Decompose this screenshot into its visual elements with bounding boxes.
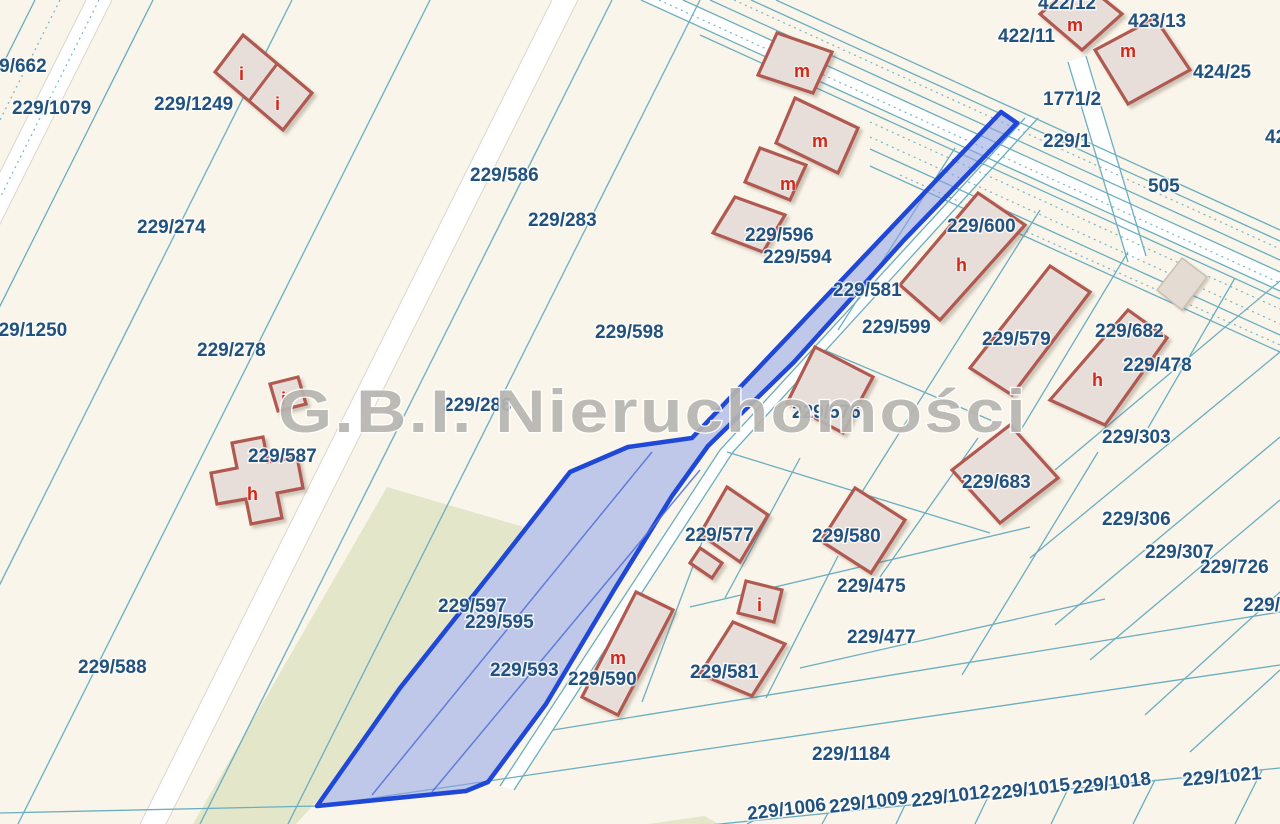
parcel-label-229-475: 229/475 [837, 576, 906, 597]
building-letter-m: m [812, 131, 828, 151]
watermark: G.B.I. Nieruchomości [278, 378, 1028, 445]
parcel-label-229-595: 229/595 [465, 612, 534, 633]
parcel-label-229-274: 229/274 [137, 217, 206, 238]
parcel-label-422-11: 422/11 [998, 26, 1055, 47]
parcel-label-229-682: 229/682 [1095, 321, 1164, 342]
parcel-label-229-1249: 229/1249 [154, 94, 233, 115]
building-letter-i: i [275, 94, 280, 114]
parcel-label-229-477: 229/477 [847, 627, 916, 648]
parcel-label-229-306: 229/306 [1102, 509, 1171, 530]
parcel-label-229-579: 229/579 [982, 329, 1051, 350]
parcel-label-229-577: 229/577 [685, 525, 754, 546]
building-letter-m: m [1067, 15, 1083, 35]
parcel-label-1771-2: 1771/2 [1043, 89, 1101, 110]
building-letter-m: m [610, 648, 626, 668]
parcel-label-229-283: 229/283 [528, 210, 597, 231]
parcel-label-229-303: 229/303 [1102, 427, 1171, 448]
parcel-label-229-599: 229/599 [862, 317, 931, 338]
building-letter-m: m [794, 61, 810, 81]
parcel-label-229-7: 229/7 [1243, 595, 1280, 616]
parcel-label-229-588: 229/588 [78, 657, 147, 678]
parcel-label-229-1079: 229/1079 [12, 98, 91, 119]
parcel-label-229-726: 229/726 [1200, 557, 1269, 578]
parcel-label-229-581: 229/581 [690, 662, 759, 683]
parcel-label-229-586: 229/586 [470, 165, 539, 186]
building-letter-m: m [1120, 41, 1136, 61]
parcel-label-229-594: 229/594 [763, 247, 832, 268]
parcel-label-505: 505 [1148, 176, 1180, 197]
parcel-label-422-12: 422/12 [1038, 0, 1096, 14]
parcel-label-229-593: 229/593 [490, 660, 559, 681]
building-letter-m: m [780, 174, 796, 194]
parcel-label-229-598: 229/598 [595, 322, 664, 343]
parcel-label-229-478: 229/478 [1123, 355, 1192, 376]
building-letter-h: h [956, 255, 967, 275]
parcel-label-229-1: 229/1 [1043, 131, 1091, 152]
parcel-label-424-25: 424/25 [1193, 62, 1252, 83]
parcel-label-229-587: 229/587 [248, 446, 317, 467]
parcel-label-229-683: 229/683 [962, 472, 1031, 493]
parcel-label-229-580: 229/580 [812, 526, 881, 547]
building-letter-h: h [1092, 370, 1103, 390]
parcel-label-423-13: 423/13 [1128, 11, 1186, 32]
building-letter-i: i [239, 64, 244, 84]
parcel-label-42: 42 [1265, 127, 1280, 148]
parcel-label-229-278: 229/278 [197, 340, 266, 361]
parcel-label-229-1250: 229/1250 [0, 320, 67, 341]
parcel-label-229-662: 229/662 [0, 56, 47, 77]
parcel-label-229-600: 229/600 [947, 216, 1016, 237]
cadastral-map-canvas[interactable]: iimmmmmhhhimi 229/662229/1079229/1249229… [0, 0, 1280, 824]
parcel-label-229-581: 229/581 [833, 280, 902, 301]
building-letter-h: h [247, 484, 258, 504]
parcel-label-229-590: 229/590 [568, 669, 637, 690]
parcel-label-229-1184: 229/1184 [812, 744, 891, 765]
building-letter-i: i [757, 595, 762, 615]
parcel-label-229-596: 229/596 [745, 225, 814, 246]
